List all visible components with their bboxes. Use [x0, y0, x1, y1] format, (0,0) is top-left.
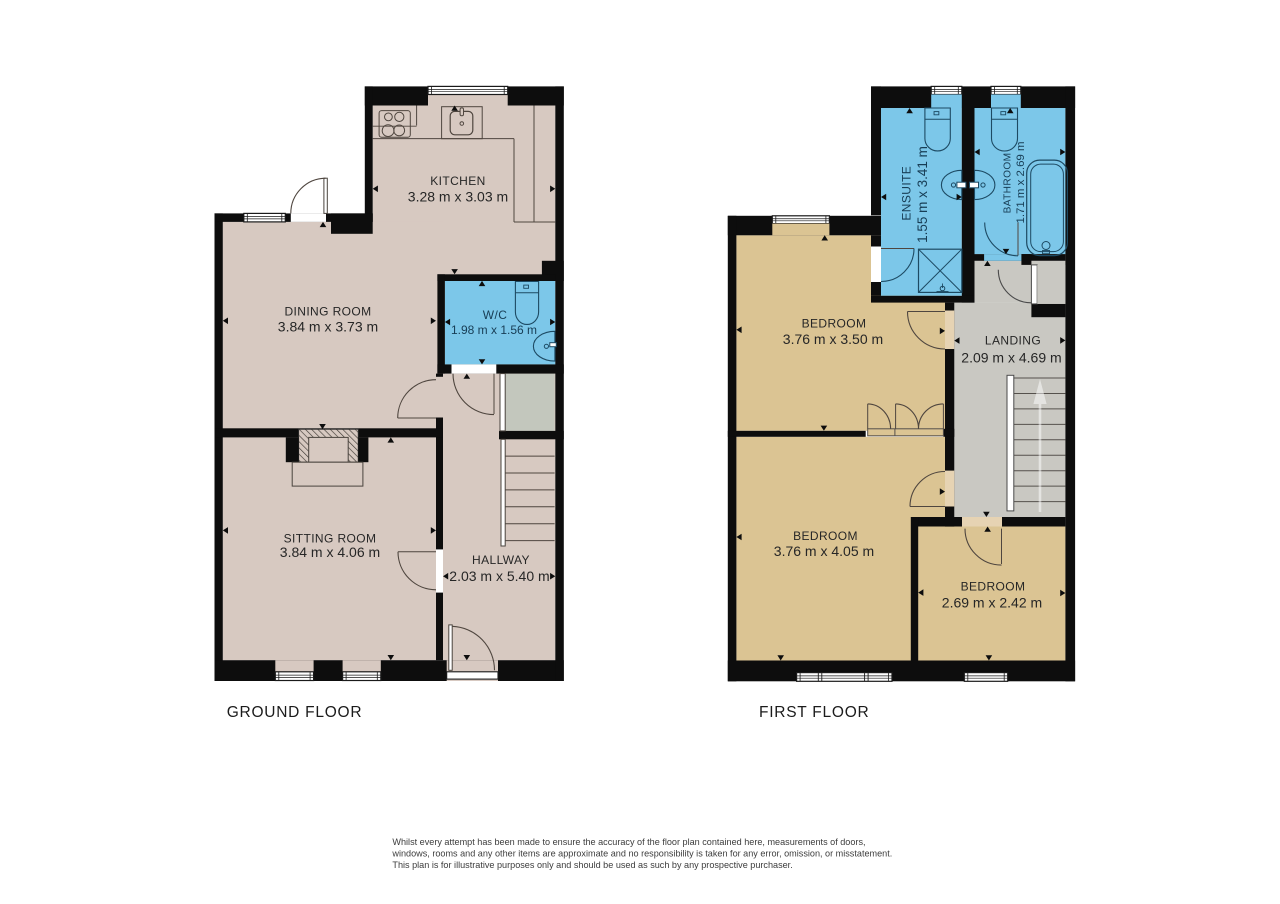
svg-text:3.76 m x 3.50 m: 3.76 m x 3.50 m	[783, 331, 883, 347]
svg-text:W/C: W/C	[483, 308, 508, 322]
svg-text:3.28 m x 3.03 m: 3.28 m x 3.03 m	[408, 189, 508, 205]
svg-text:This plan is for illustrative: This plan is for illustrative purposes o…	[392, 860, 792, 870]
svg-text:BEDROOM: BEDROOM	[802, 317, 867, 331]
svg-text:1.71 m x 2.69 m: 1.71 m x 2.69 m	[1015, 141, 1027, 223]
svg-text:LANDING: LANDING	[985, 334, 1041, 348]
svg-text:3.76 m x 4.05 m: 3.76 m x 4.05 m	[774, 543, 874, 559]
svg-text:DINING ROOM: DINING ROOM	[284, 305, 371, 319]
svg-text:FIRST FLOOR: FIRST FLOOR	[759, 704, 869, 721]
svg-text:ENSUITE: ENSUITE	[900, 166, 914, 221]
svg-text:1.98 m x 1.56 m: 1.98 m x 1.56 m	[451, 323, 537, 337]
svg-text:Whilst every attempt has been: Whilst every attempt has been made to en…	[392, 837, 865, 847]
svg-text:windows, rooms and any other i: windows, rooms and any other items are a…	[391, 849, 892, 859]
svg-text:BATHROOM: BATHROOM	[1002, 153, 1013, 214]
svg-text:3.84 m x 3.73 m: 3.84 m x 3.73 m	[278, 319, 378, 335]
svg-text:1.55 m x 3.41 m: 1.55 m x 3.41 m	[915, 146, 930, 243]
svg-text:3.84 m x 4.06 m: 3.84 m x 4.06 m	[280, 544, 380, 560]
svg-text:2.69 m x 2.42 m: 2.69 m x 2.42 m	[942, 595, 1042, 611]
svg-text:2.09 m x 4.69 m: 2.09 m x 4.69 m	[961, 349, 1061, 365]
svg-text:2.03 m x 5.40 m: 2.03 m x 5.40 m	[449, 568, 549, 584]
svg-text:HALLWAY: HALLWAY	[472, 553, 530, 567]
svg-text:BEDROOM: BEDROOM	[961, 579, 1026, 593]
svg-text:KITCHEN: KITCHEN	[430, 174, 485, 188]
svg-text:BEDROOM: BEDROOM	[793, 529, 858, 543]
svg-text:GROUND FLOOR: GROUND FLOOR	[227, 704, 363, 721]
